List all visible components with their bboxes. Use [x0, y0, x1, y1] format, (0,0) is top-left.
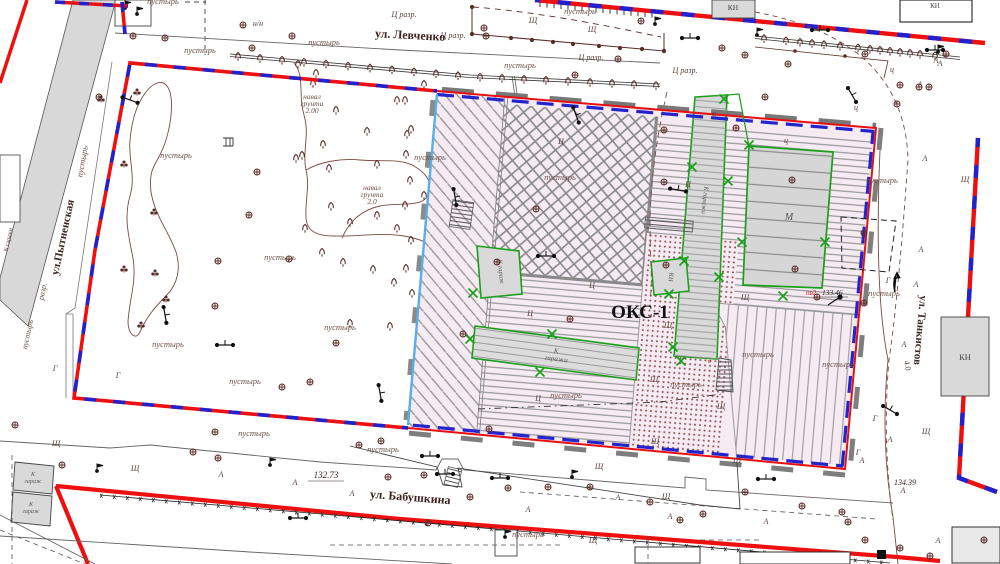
- svg-text:А: А: [935, 536, 941, 545]
- svg-text:А: А: [901, 340, 907, 349]
- svg-text:КН: КН: [930, 2, 940, 10]
- svg-text:пустырь: пустырь: [264, 252, 296, 262]
- svg-text:гараж: гараж: [25, 479, 42, 485]
- svg-text:Щ: Щ: [587, 25, 597, 34]
- svg-text:пв2: пв2: [806, 289, 817, 297]
- svg-text:Г: Г: [855, 448, 861, 457]
- svg-text:Щ: Щ: [649, 375, 659, 384]
- svg-text:А: А: [913, 280, 919, 289]
- svg-text:А: А: [349, 489, 355, 498]
- svg-text:Щ: Щ: [740, 293, 750, 302]
- svg-text:н/н: н/н: [253, 19, 263, 28]
- svg-text:ОКС-1: ОКС-1: [611, 302, 669, 323]
- svg-text:пустырь: пустырь: [512, 529, 544, 539]
- svg-text:Ц разр.: Ц разр.: [672, 66, 698, 75]
- svg-text:пустырь: пустырь: [866, 175, 898, 185]
- svg-text:КН: КН: [667, 272, 675, 282]
- svg-text:Ц разр.: Ц разр.: [391, 10, 417, 19]
- svg-text:пустырь: пустырь: [184, 45, 216, 55]
- svg-text:А: А: [667, 512, 673, 521]
- svg-text:2.0: 2.0: [367, 197, 377, 206]
- svg-text:пустырь: пустырь: [324, 322, 356, 332]
- svg-text:пустырь: пустырь: [147, 0, 179, 6]
- svg-text:Г: Г: [52, 364, 58, 373]
- svg-text:Г: Г: [885, 276, 891, 285]
- svg-text:КН: КН: [959, 352, 971, 362]
- svg-text:Щ: Щ: [51, 439, 61, 448]
- svg-text:Г: Г: [115, 371, 121, 380]
- svg-text:пустырь: пустырь: [238, 428, 270, 438]
- svg-text:А: А: [922, 154, 928, 163]
- svg-text:А: А: [887, 435, 893, 444]
- svg-text:А: А: [900, 486, 906, 495]
- svg-text:Щ: Щ: [130, 464, 140, 473]
- svg-text:4.0: 4.0: [902, 360, 913, 371]
- svg-text:пустырь: пустырь: [670, 379, 702, 389]
- svg-text:Щ: Щ: [960, 175, 970, 184]
- svg-text:ц: ц: [784, 136, 788, 145]
- svg-text:132.73: 132.73: [314, 470, 339, 480]
- svg-text:пустырь: пустырь: [160, 150, 192, 160]
- svg-text:2.00: 2.00: [305, 106, 318, 115]
- svg-text:пустырь: пустырь: [229, 376, 261, 386]
- svg-text:А: А: [918, 245, 924, 254]
- svg-text:Щ: Щ: [661, 492, 671, 501]
- svg-text:пустырь: пустырь: [550, 390, 582, 400]
- svg-text:Щ: Щ: [650, 437, 660, 446]
- svg-text:Ц разр.: Ц разр.: [578, 53, 604, 62]
- svg-text:пустырь: пустырь: [742, 349, 774, 359]
- svg-text:пустырь: пустырь: [414, 152, 446, 162]
- svg-text:ц: ц: [712, 109, 716, 118]
- svg-text:пустырь: пустырь: [544, 172, 576, 182]
- svg-text:в: в: [708, 359, 711, 365]
- svg-text:А: А: [763, 517, 769, 526]
- svg-text:А: А: [525, 505, 531, 514]
- svg-text:ц: ц: [854, 103, 858, 112]
- svg-text:Г: Г: [872, 414, 878, 423]
- svg-text:А: А: [917, 80, 923, 89]
- svg-text:Щ: Щ: [528, 16, 538, 25]
- svg-text:Щ: Щ: [716, 402, 726, 411]
- svg-text:Щ: Щ: [921, 427, 931, 436]
- svg-text:Щ: Щ: [594, 462, 604, 471]
- svg-text:Ц разр.: Ц разр.: [440, 31, 466, 40]
- svg-text:Щ: Щ: [732, 456, 742, 465]
- svg-text:пустырь: пустырь: [367, 444, 399, 454]
- svg-text:А: А: [218, 470, 224, 479]
- svg-text:КН: КН: [728, 3, 739, 12]
- svg-text:пустырь: пустырь: [152, 339, 184, 349]
- svg-text:пустырь: пустырь: [868, 288, 900, 298]
- svg-text:пустырь: пустырь: [822, 359, 854, 369]
- svg-text:М: М: [784, 212, 794, 223]
- svg-text:А: А: [292, 478, 298, 487]
- svg-text:пустырь: пустырь: [564, 6, 596, 16]
- svg-text:ц: ц: [890, 65, 894, 74]
- svg-text:гараж: гараж: [23, 509, 40, 515]
- svg-text:пустырь: пустырь: [504, 60, 536, 70]
- svg-text:пустырь: пустырь: [308, 37, 340, 47]
- svg-text:А: А: [615, 493, 621, 502]
- svg-text:А: А: [859, 456, 865, 465]
- svg-text:А: А: [937, 59, 943, 68]
- svg-text:Щ: Щ: [588, 536, 598, 545]
